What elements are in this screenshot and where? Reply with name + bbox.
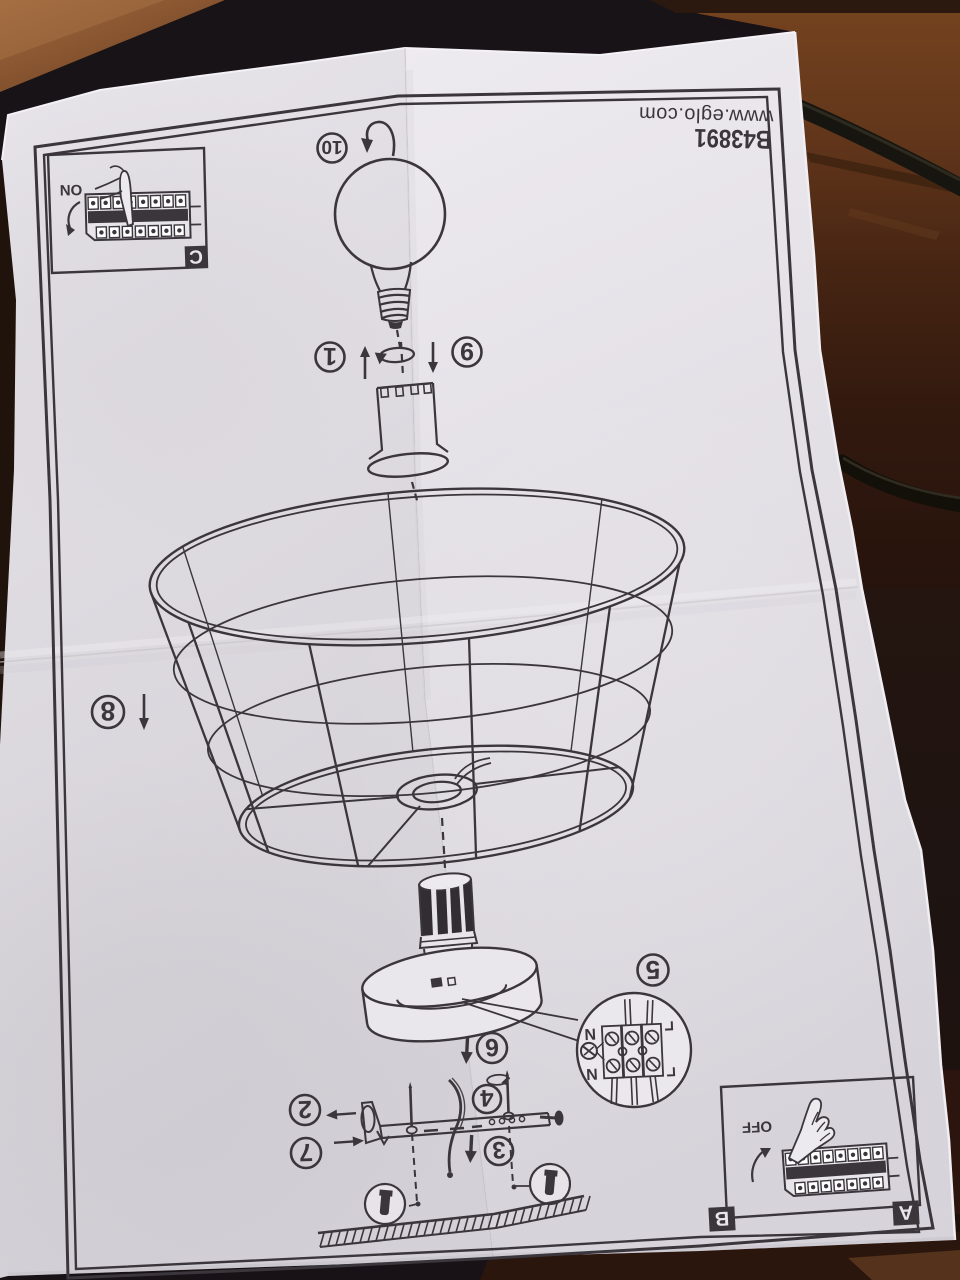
svg-text:7: 7: [299, 1138, 314, 1166]
svg-text:N: N: [584, 1025, 596, 1042]
svg-text:10: 10: [321, 136, 343, 157]
svg-text:8: 8: [100, 696, 115, 726]
svg-text:A: A: [898, 1201, 914, 1224]
svg-text:9: 9: [460, 337, 474, 365]
svg-text:ON: ON: [60, 181, 83, 198]
svg-text:N: N: [586, 1065, 598, 1082]
svg-text:6: 6: [485, 1033, 500, 1061]
svg-text:B43891: B43891: [694, 123, 772, 154]
svg-text:4: 4: [479, 1084, 494, 1111]
svg-text:1: 1: [323, 342, 337, 370]
svg-text:B: B: [714, 1207, 730, 1230]
svg-text:2: 2: [298, 1095, 313, 1123]
svg-text:C: C: [188, 245, 203, 266]
svg-text:5: 5: [645, 955, 661, 985]
svg-text:3: 3: [492, 1136, 506, 1163]
svg-text:OFF: OFF: [742, 1117, 773, 1136]
